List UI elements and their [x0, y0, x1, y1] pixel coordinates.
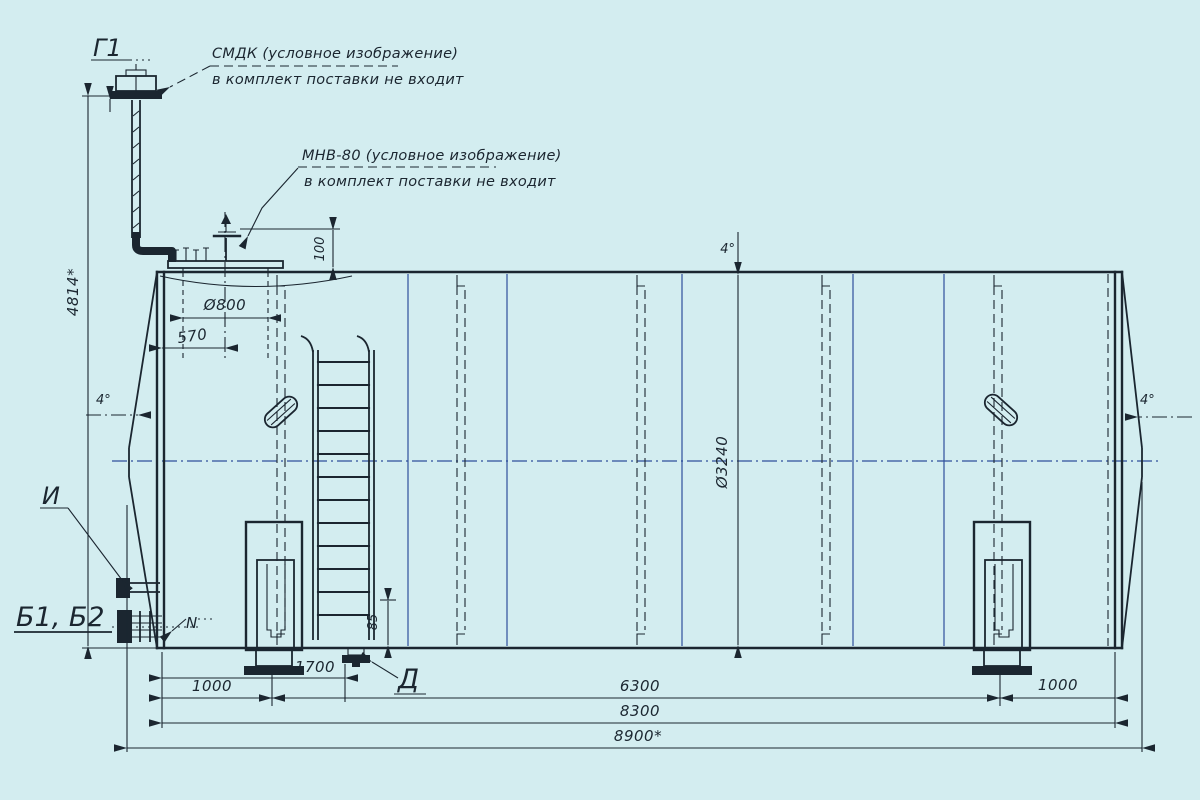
label-d: Д: [372, 662, 426, 695]
tank-drawing: СМДК (условное изображение) в комплект п…: [0, 0, 1200, 800]
tank-shell: [129, 272, 1142, 648]
dim-angle-left-text: 4°: [96, 393, 111, 408]
shell-arc: [160, 276, 352, 287]
dim-support-to-end-right: 1000: [1000, 676, 1115, 698]
smdk-note-line1: СМДК (условное изображение): [212, 46, 458, 62]
label-i-leader: [68, 508, 122, 580]
dim-between-supports-text: 6300: [620, 677, 660, 695]
dim-angle-right: 4°: [1138, 393, 1192, 417]
dim-between-supports: 6300: [272, 677, 1000, 698]
lifting-lug-left: [262, 393, 301, 430]
label-i: И: [40, 482, 122, 580]
dim-manhole-diameter-text: Ø800: [203, 296, 246, 314]
ladder-hooks: [301, 336, 369, 352]
label-b1b2: Б1, Б2: [14, 602, 198, 633]
ladder-rails: [313, 350, 374, 640]
right-cone: [1122, 272, 1142, 648]
mnv-note-leader: [248, 168, 298, 236]
dim-manhole-offset-text: 570: [176, 325, 208, 347]
dim-end-to-support-left-text: 1000: [192, 677, 232, 695]
drain-valve: [342, 648, 370, 667]
dim-angle-right-text: 4°: [1140, 393, 1155, 408]
axis-lines: [112, 212, 1160, 646]
dim-drain-height: 85: [366, 600, 396, 645]
label-i-text: И: [42, 482, 60, 510]
dim-end-to-support-left: 1000: [162, 677, 272, 698]
mnv-note-line2: в комплект поставки не входит: [304, 174, 556, 190]
bolt-studs: [173, 248, 209, 261]
dim-hatch-height-text: 100: [313, 237, 328, 262]
dim-manhole-offset: 570: [162, 325, 225, 348]
label-b1b2-text: Б1, Б2: [16, 602, 105, 633]
mnv-80-valve: [214, 214, 240, 261]
smdk-note-line2: в комплект поставки не входит: [212, 72, 464, 88]
ring: [457, 275, 465, 645]
mnv-note: МНВ-80 (условное изображение) в комплект…: [248, 148, 562, 236]
right-end-wall: [1115, 272, 1122, 648]
ring: [277, 275, 285, 645]
label-n-text: N: [186, 614, 197, 632]
label-d-text: Д: [397, 664, 419, 695]
smdk-note: СМДК (условное изображение) в комплект п…: [170, 46, 464, 88]
dim-overall-length-text: 8900*: [614, 727, 662, 745]
dim-angle-top-text: 4°: [720, 242, 735, 257]
smdk-device: [110, 64, 162, 99]
internal-rings: [277, 275, 1002, 645]
ring: [637, 275, 645, 645]
ext-lines: [82, 96, 157, 648]
dim-overall-height-text: 4814*: [64, 268, 82, 316]
label-n: N: [172, 614, 216, 632]
dim-tank-diameter: Ø3240 4°: [713, 232, 738, 645]
blueprint-page: СМДК (условное изображение) в комплект п…: [0, 0, 1200, 800]
nozzle-i: [116, 578, 160, 598]
dim-support-to-end-right-text: 1000: [1038, 676, 1078, 694]
label-g1: Г1: [91, 34, 152, 62]
dim-tank-diameter-text: Ø3240: [713, 436, 731, 489]
dim-cylinder-length-text: 8300: [620, 702, 660, 720]
label-n-arrow: [172, 619, 186, 631]
dim-angle-left: 4°: [86, 393, 138, 415]
smdk-note-leader: [170, 66, 210, 87]
label-g1-text: Г1: [93, 34, 122, 62]
support-left: [244, 522, 304, 675]
mnv-note-line1: МНВ-80 (условное изображение): [302, 148, 562, 164]
ladder: [301, 336, 374, 640]
dim-end-to-drain-text: 1700: [295, 658, 335, 676]
ring: [822, 275, 830, 645]
lifting-lug-right: [982, 391, 1021, 428]
label-d-leader: [372, 662, 398, 678]
dimensions: 4814* 100 Ø800 570 Ø3240 4° 4°: [64, 96, 1192, 752]
ladder-rungs: [318, 362, 369, 615]
dim-cylinder-length: 8300: [162, 702, 1115, 723]
dim-overall-length: 8900*: [127, 727, 1142, 748]
dim-drain-height-text: 85: [366, 614, 381, 631]
smdk-vent-pipe: [132, 100, 172, 262]
manhole-assembly: [110, 64, 283, 358]
